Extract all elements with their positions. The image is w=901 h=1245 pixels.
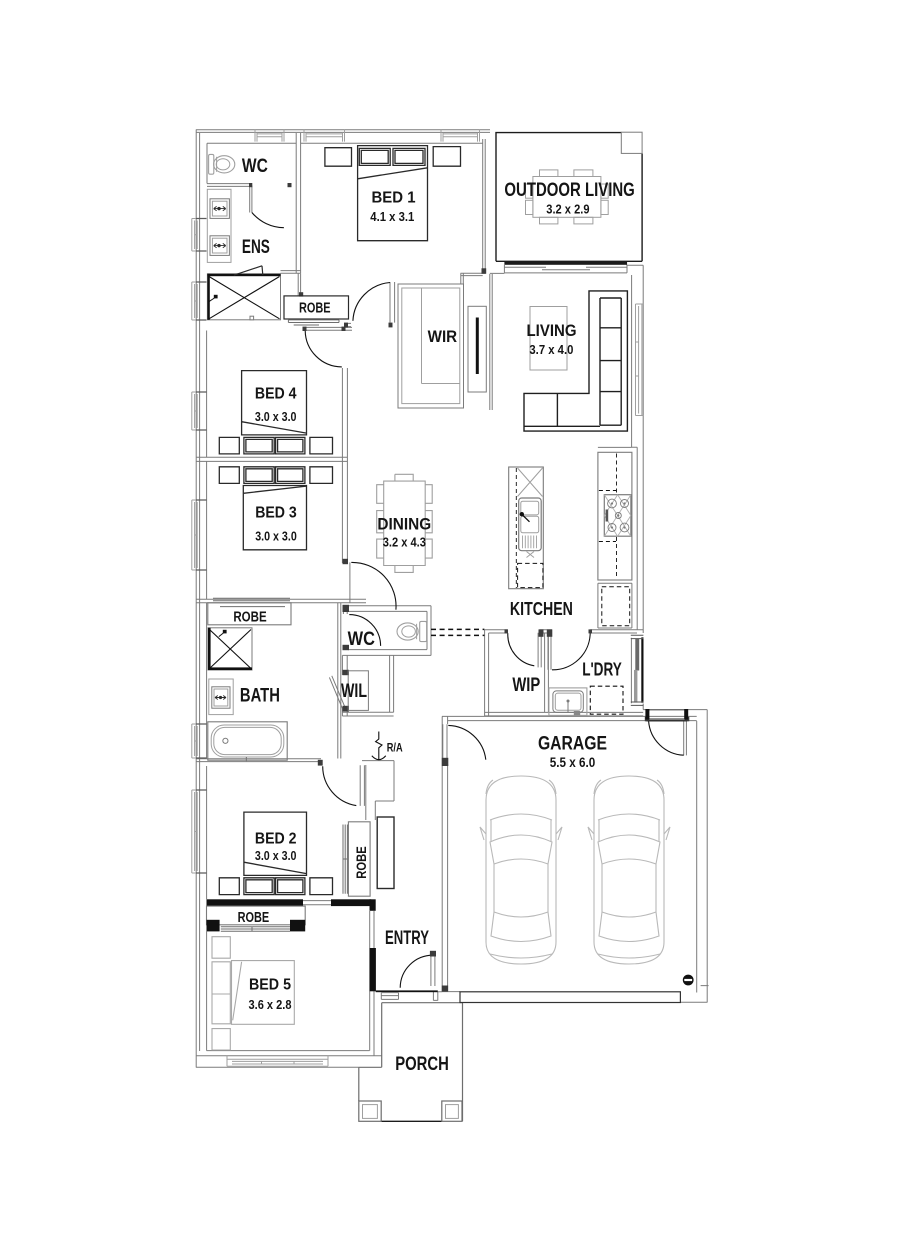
svg-text:3.2 x 2.9: 3.2 x 2.9 [546, 201, 589, 216]
svg-text:BED 4: BED 4 [255, 386, 297, 403]
svg-text:ROBE: ROBE [233, 610, 267, 626]
svg-text:ROBE: ROBE [353, 846, 369, 879]
svg-text:WIR: WIR [428, 327, 458, 346]
svg-text:3.0 x 3.0: 3.0 x 3.0 [255, 409, 297, 424]
svg-text:DINING: DINING [377, 515, 431, 534]
svg-text:4.1 x 3.1: 4.1 x 3.1 [370, 209, 414, 224]
svg-text:3.6 x 2.8: 3.6 x 2.8 [249, 997, 292, 1012]
svg-text:ROBE: ROBE [299, 301, 331, 317]
svg-text:WC: WC [348, 628, 375, 650]
svg-text:BATH: BATH [240, 686, 280, 707]
svg-text:ENTRY: ENTRY [385, 928, 429, 949]
svg-text:3.0 x 3.0: 3.0 x 3.0 [255, 529, 297, 544]
svg-text:GARAGE: GARAGE [538, 732, 607, 754]
svg-text:BED 2: BED 2 [255, 831, 297, 848]
svg-text:WC: WC [242, 155, 268, 177]
svg-text:OUTDOOR LIVING: OUTDOOR LIVING [504, 179, 634, 201]
svg-text:LIVING: LIVING [527, 321, 577, 340]
svg-text:R/A: R/A [387, 743, 403, 755]
svg-text:3.0 x 3.0: 3.0 x 3.0 [255, 848, 297, 863]
svg-text:PORCH: PORCH [395, 1053, 449, 1075]
svg-text:WIP: WIP [512, 674, 540, 696]
svg-text:3.7 x 4.0: 3.7 x 4.0 [529, 342, 573, 357]
svg-text:BED 5: BED 5 [249, 977, 291, 994]
svg-text:3.2 x 4.3: 3.2 x 4.3 [383, 535, 426, 550]
svg-text:L'DRY: L'DRY [582, 660, 622, 680]
svg-text:KITCHEN: KITCHEN [510, 598, 573, 619]
svg-text:BED 3: BED 3 [255, 505, 297, 522]
svg-text:5.5 x 6.0: 5.5 x 6.0 [550, 755, 596, 770]
svg-text:ROBE: ROBE [238, 910, 270, 926]
svg-text:BED 1: BED 1 [372, 190, 416, 207]
svg-text:ENS: ENS [242, 236, 270, 258]
svg-text:WIL: WIL [341, 680, 367, 702]
